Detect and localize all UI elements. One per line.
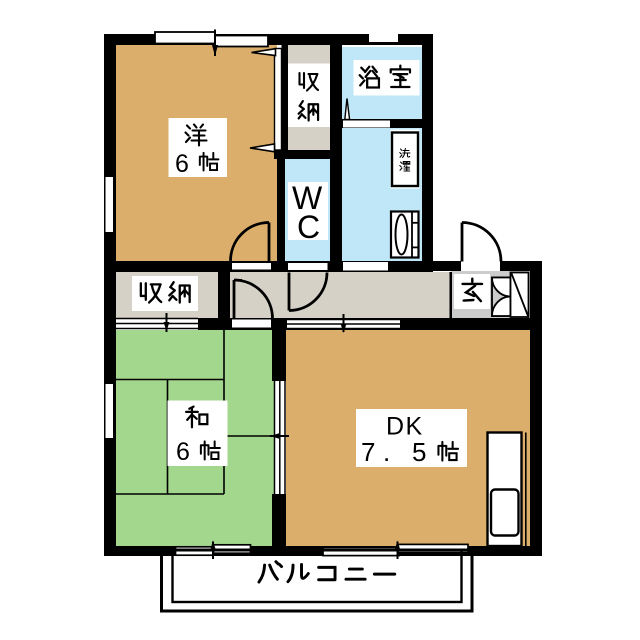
- svg-text:6: 6: [175, 150, 189, 178]
- svg-text:.: .: [383, 437, 390, 467]
- svg-text:C: C: [297, 209, 320, 245]
- svg-text:7: 7: [361, 437, 375, 467]
- svg-text:5: 5: [412, 437, 426, 467]
- svg-text:6: 6: [176, 438, 190, 466]
